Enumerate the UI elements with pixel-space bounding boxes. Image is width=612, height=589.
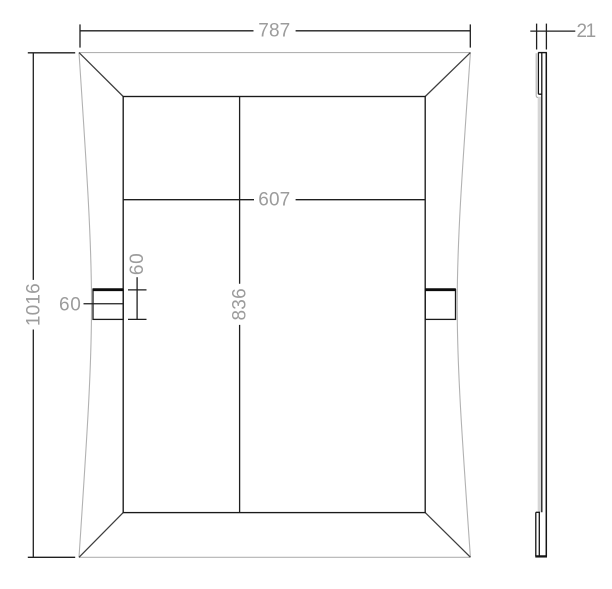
- svg-text:21: 21: [577, 21, 596, 42]
- svg-text:60: 60: [59, 294, 82, 315]
- svg-text:60: 60: [127, 253, 148, 276]
- svg-text:607: 607: [258, 190, 290, 211]
- svg-text:787: 787: [258, 21, 290, 42]
- svg-text:836: 836: [230, 288, 251, 320]
- svg-text:1016: 1016: [23, 283, 44, 326]
